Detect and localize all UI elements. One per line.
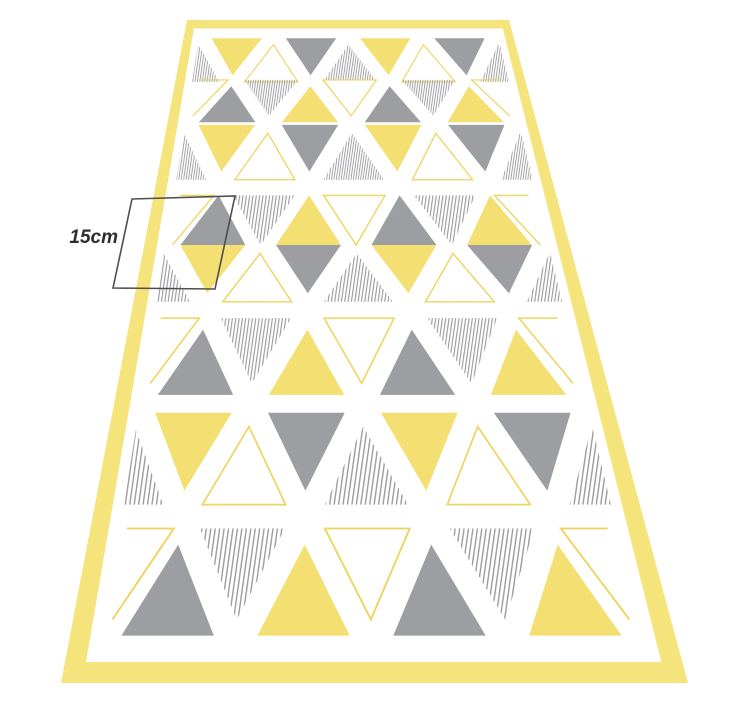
rug-product-image: 15cm	[0, 0, 752, 703]
rug-illustration: 15cm	[0, 0, 752, 703]
measurement-label: 15cm	[69, 227, 118, 248]
